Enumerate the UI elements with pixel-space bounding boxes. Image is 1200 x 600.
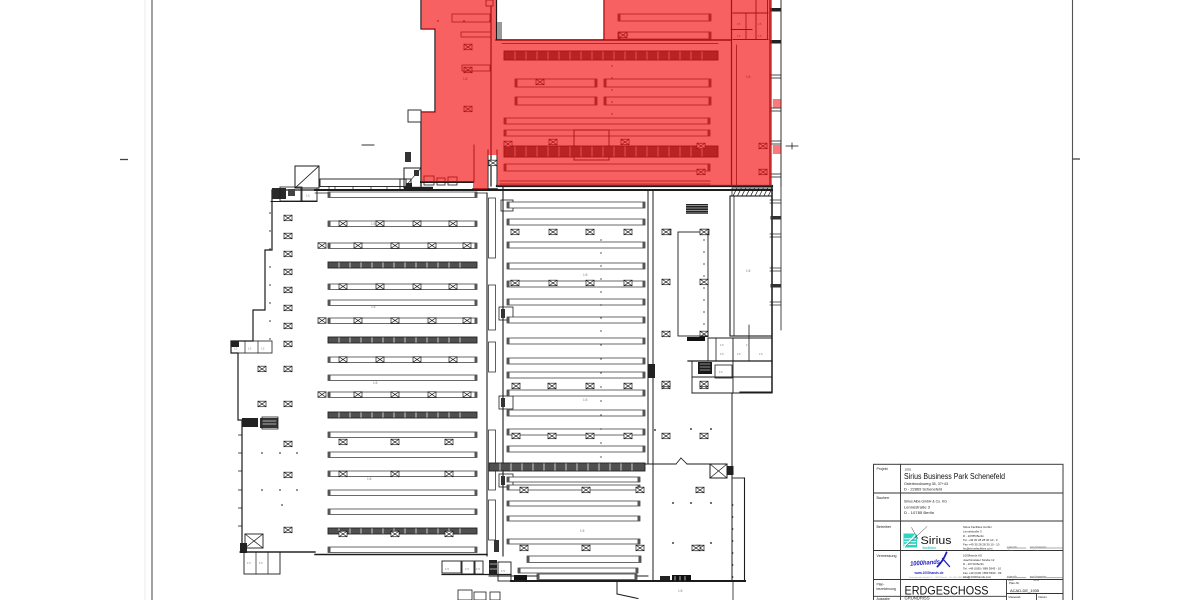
svg-text:ACAD-DE_1935: ACAD-DE_1935 <box>1010 588 1040 593</box>
svg-text:1:5: 1:5 <box>247 561 251 565</box>
svg-text:1:5: 1:5 <box>367 477 372 481</box>
svg-text:1:5: 1:5 <box>373 381 378 385</box>
svg-text:Projekt: Projekt <box>877 467 888 471</box>
svg-text:1:5: 1:5 <box>678 589 683 593</box>
svg-text:1:5: 1:5 <box>465 567 469 571</box>
svg-text:facilities: facilities <box>923 546 937 550</box>
svg-text:1:5: 1:5 <box>746 343 750 347</box>
svg-text:GRUNDRISS: GRUNDRISS <box>905 595 930 600</box>
svg-text:aufgestellt:: aufgestellt: <box>1007 575 1017 578</box>
svg-text:1:5: 1:5 <box>737 352 741 356</box>
svg-text:bezeichnung: bezeichnung <box>877 587 896 591</box>
svg-text:Sirius Business Park Schenefel: Sirius Business Park Schenefeld <box>904 472 1005 481</box>
svg-text:1:5: 1:5 <box>259 561 263 565</box>
svg-text:Osterbrooksweg 35, 37+43: Osterbrooksweg 35, 37+43 <box>904 482 948 486</box>
svg-text:Massstab: Massstab <box>1009 595 1021 599</box>
svg-text:1:5: 1:5 <box>583 398 588 402</box>
svg-text:D - 22869 Schenefeld: D - 22869 Schenefeld <box>904 488 942 492</box>
svg-text:aufgestellt:: aufgestellt: <box>1007 545 1017 548</box>
svg-text:1:5: 1:5 <box>580 529 585 533</box>
svg-text:1:5: 1:5 <box>583 273 588 277</box>
svg-text:Datum: Datum <box>1033 579 1039 582</box>
svg-text:1:5: 1:5 <box>501 569 505 573</box>
svg-text:1:5: 1:5 <box>720 343 724 347</box>
svg-text:Plan-Nr.: Plan-Nr. <box>1009 581 1020 585</box>
svg-text:1:5: 1:5 <box>476 567 480 571</box>
svg-text:www.1000hands.de: www.1000hands.de <box>914 571 944 575</box>
svg-text:Datum: Datum <box>1039 595 1048 599</box>
svg-text:1:5: 1:5 <box>746 269 751 273</box>
svg-text:1:5: 1:5 <box>306 194 310 198</box>
svg-text:Name: Name <box>1008 550 1014 552</box>
svg-text:Datum: Datum <box>1033 549 1039 552</box>
svg-text:Betreiber: Betreiber <box>877 525 892 529</box>
svg-text:1:5: 1:5 <box>719 370 723 374</box>
svg-text:Joachimstaler Straße 12 · 1071: Joachimstaler Straße 12 · 10719 Berlin ·… <box>909 576 970 579</box>
svg-text:info@1000hands.com: info@1000hands.com <box>963 575 992 579</box>
svg-text:Vermessung: Vermessung <box>877 554 897 558</box>
svg-text:fm@siriusfacilities.com: fm@siriusfacilities.com <box>963 547 993 551</box>
svg-text:1:5: 1:5 <box>445 567 449 571</box>
svg-text:D - 10785 Berlin: D - 10785 Berlin <box>904 510 934 515</box>
svg-text:gepr./freigegeben:: gepr./freigegeben: <box>1030 545 1047 548</box>
svg-text:Bauherr: Bauherr <box>877 496 891 500</box>
svg-text:gepr./freigegeben:: gepr./freigegeben: <box>1030 575 1047 578</box>
svg-text:Sirius Alba GmbH & Co. KG: Sirius Alba GmbH & Co. KG <box>904 498 947 503</box>
svg-text:1:5: 1:5 <box>371 222 376 226</box>
svg-text:1:5: 1:5 <box>759 352 763 356</box>
svg-text:1:5: 1:5 <box>371 305 376 309</box>
svg-text:Lennéstraße 3: Lennéstraße 3 <box>904 504 931 509</box>
svg-text:1:5: 1:5 <box>720 352 724 356</box>
